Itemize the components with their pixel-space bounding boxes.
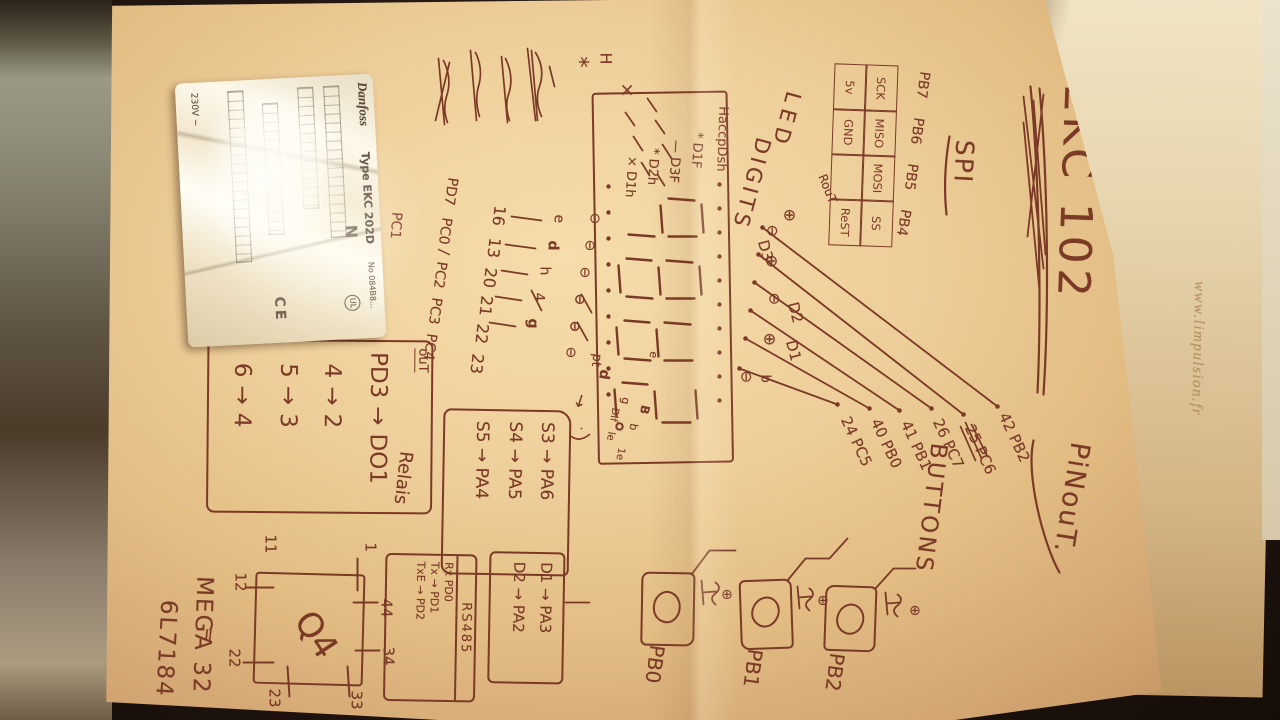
pin-number: 13 (484, 237, 502, 259)
arrow-icon: → (228, 385, 254, 405)
relay-dst: DO1 (364, 433, 390, 484)
button-circle (649, 588, 685, 626)
seg-lamp-icon: ⊖ (567, 321, 581, 333)
spi-cell: 5v (833, 64, 867, 112)
port-name: PC3 (425, 297, 443, 326)
port-name: PD7 (441, 177, 459, 207)
terminal-pin: 22 (226, 649, 241, 668)
spi-cell: ReST (828, 198, 862, 246)
lamp-label: b (758, 375, 771, 383)
led-legend-item: — D3F (666, 140, 682, 184)
margin-mark-h: H (597, 53, 613, 65)
keys-arrow-marks (571, 429, 589, 440)
spi-port-label: PB6 (907, 117, 925, 146)
seg-lamp-icon: ⊖ (587, 213, 601, 225)
seg-lamp-icon: ⊖ (582, 240, 596, 252)
relay-dst: 3 (274, 413, 300, 428)
seg-lamp-icon: ⊖ (563, 347, 577, 359)
chip-name: MEGA 32 (188, 576, 215, 695)
sticker-ce-mark: CE (272, 296, 287, 323)
relay-src: 5 (275, 363, 301, 378)
lamp-icon: ⊕ (761, 333, 777, 346)
relay-src: PD3 (364, 352, 390, 398)
segment-letter: e (551, 215, 565, 224)
terminal-pin: 33 (348, 691, 363, 710)
led-legend-item: * D1F (688, 132, 704, 169)
page-subtitle: PiNouT. (1049, 440, 1093, 556)
led-box-header: HaccpDsh (714, 106, 729, 172)
margin-mark-star: * (567, 57, 589, 68)
rs485-box: RS485 Rx PD0 Tx → PD1 TxE → PD2 (382, 553, 477, 703)
port-name: PC0 (435, 217, 453, 246)
spi-cell: GND (831, 108, 865, 156)
arrow-mark: → (568, 391, 589, 410)
terminal-pin: 34 (380, 647, 395, 666)
pin-label: 25 PC6 (961, 423, 997, 477)
rs485-row: TxE → PD2 (412, 555, 429, 699)
spi-port-label: PB7 (913, 71, 931, 100)
relay-map-row: 5 → 3 (274, 363, 301, 428)
terminal-pin: 23 (266, 689, 281, 708)
danfoss-sticker: Danfoss Type EKC 202D No 084B8... N UL C… (174, 73, 386, 347)
lamp-icon: ⊖ (764, 225, 779, 238)
segment-note: le (604, 431, 615, 442)
terminal-pin: 11 (262, 535, 277, 554)
button-label: PB0 (642, 644, 667, 685)
port-name: / (435, 248, 451, 255)
keys-row: S4 → PA5 (496, 421, 531, 564)
spi-cell: SCK (864, 65, 898, 113)
keys-row: S3 → PA6 (528, 422, 563, 565)
sticker-glare (174, 73, 373, 293)
keys-row: S5 → PA4 (463, 421, 498, 564)
pin-number: 20 (480, 267, 498, 289)
relay-map-row: 4 → 2 (318, 364, 345, 429)
lamp-label: D3 (755, 239, 775, 263)
pin-number: 21 (476, 295, 494, 317)
pt-note: pt (588, 353, 603, 368)
paper-watermark: www.limpulsion.fr (1188, 281, 1206, 417)
switch-icon: ⊕ (815, 595, 829, 607)
button-sketch (823, 585, 877, 653)
segment-note: d (596, 369, 611, 381)
rs485-row: Rx PD0 (440, 556, 456, 700)
spi-cell: SS (859, 200, 893, 248)
rs485-header: RS485 (453, 556, 475, 700)
out-header: ouT (414, 348, 429, 372)
title-underline (1030, 87, 1046, 395)
segment-letter: d (545, 241, 559, 251)
relay-map-row: PD3 → DO1 (364, 352, 391, 484)
spi-table: SCK MISO MOSI SS 5v GND ReST (829, 64, 897, 246)
relay-src: 6 (229, 363, 255, 378)
button-label: PB1 (740, 648, 765, 689)
terminal-box-label: Q4 (288, 605, 343, 664)
button-circle (745, 591, 786, 633)
led-digits-label: DIGITS (728, 135, 773, 232)
title-scribble (1023, 95, 1045, 291)
lamp-label: D2 (785, 301, 805, 325)
spi-port-label: PB4 (894, 208, 912, 237)
spi-port-label: PB5 (901, 163, 919, 192)
background-papers-left (0, 0, 112, 720)
display-row: D1 → PA3 (530, 562, 559, 674)
spi-label: SPI (950, 139, 977, 185)
arrow-icon: → (318, 386, 344, 406)
button-circle (830, 599, 870, 640)
button-sketch (640, 572, 695, 647)
segment-note: e (647, 351, 659, 360)
arrow-icon: → (274, 386, 300, 406)
switch-icon: ⊕ (719, 589, 733, 601)
relay-map-row: 6 → 4 (228, 363, 255, 428)
segment-note: Dif (607, 407, 619, 423)
button-label: PB2 (822, 652, 847, 693)
terminal-pin: 1 (362, 543, 377, 553)
seg-lamp-icon: ⊖ (577, 267, 591, 279)
terminal-pin: 12 (232, 573, 247, 592)
sticker-ul-mark: UL (344, 294, 361, 311)
crossed-scribbles (435, 49, 541, 125)
display-row: D2 → PA2 (503, 561, 532, 673)
segment-letter: 4 (531, 293, 545, 302)
spi-cell: MOSI (860, 155, 894, 203)
relay-dst: 2 (318, 413, 344, 428)
spi-cell: MISO (862, 110, 896, 158)
relay-out-box: ouT Relais PD3 → DO1 4 → 2 5 → 3 6 → 4 (205, 339, 433, 515)
display-map-box: D1 → PA3 D2 → PA2 (487, 551, 565, 684)
segment-note: 1e (613, 447, 625, 461)
handwritten-code: 6L7184 (151, 599, 179, 698)
relais-label: Relais (390, 450, 414, 505)
segment-letter: g (525, 319, 539, 329)
relay-src: 4 (319, 364, 345, 379)
button-sketch (738, 579, 793, 651)
lamp-icon: ⊖ (738, 371, 753, 384)
lamp-icon: ⊕ (781, 209, 797, 222)
arrow-icon: → (364, 406, 390, 426)
seg-lamp-icon: ⊖ (572, 294, 586, 306)
margin-mark-x: × (617, 83, 635, 98)
port-name-extra: PC1 (387, 212, 403, 240)
terminal-pin: 44 (378, 599, 393, 618)
relay-dst: 4 (228, 413, 254, 428)
segment-letter: h (537, 267, 551, 276)
lamp-icon: ⊖ (766, 293, 781, 306)
lamp-label: D1 (783, 339, 803, 363)
paper-edge-sliver (1262, 0, 1280, 540)
pin-number: 23 (467, 353, 485, 375)
pin-number: 16 (489, 205, 507, 227)
port-name: PC2 (430, 261, 448, 290)
rs485-row: Tx → PD1 (426, 556, 443, 700)
switch-icon: ⊕ (907, 605, 921, 617)
terminal-box: Q4 (252, 572, 365, 687)
led-legend-item: * D2h (644, 148, 660, 186)
photo-of-handwritten-notes: { "photo": { "watermark": "www.limpulsio… (0, 0, 1280, 720)
pin-label: 42 PB2 (995, 411, 1031, 465)
led-legend-item: × D1h (622, 156, 638, 198)
pin-number: 22 (472, 323, 490, 345)
